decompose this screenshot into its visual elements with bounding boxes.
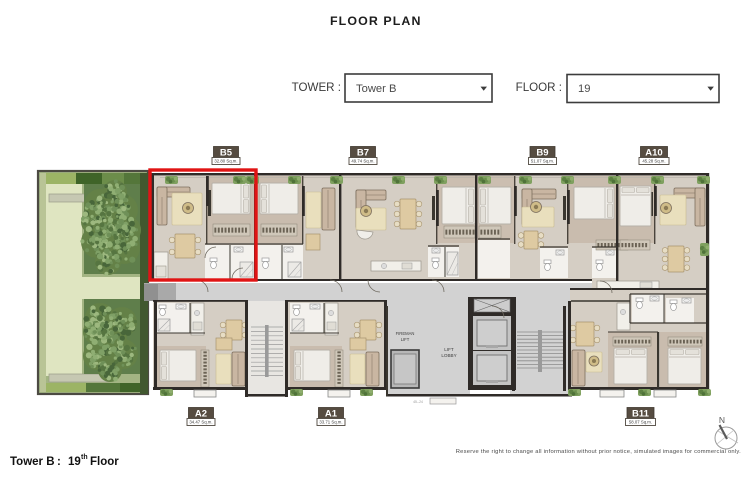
- svg-text:51.07 Sq.m.: 51.07 Sq.m.: [531, 159, 554, 164]
- svg-text:B11: B11: [632, 409, 650, 420]
- svg-text:34.47 Sq.m.: 34.47 Sq.m.: [189, 420, 212, 425]
- svg-text:N: N: [719, 415, 725, 425]
- svg-text:FLOOR :: FLOOR :: [516, 81, 562, 94]
- svg-text:19: 19: [68, 456, 81, 468]
- svg-text:A1: A1: [325, 409, 338, 420]
- svg-text:FIREMAN: FIREMAN: [396, 331, 415, 336]
- svg-text:A2: A2: [195, 409, 207, 420]
- svg-text:B5: B5: [220, 148, 233, 159]
- svg-text:LIFT: LIFT: [401, 337, 410, 342]
- svg-text:Floor: Floor: [90, 456, 119, 468]
- svg-text:LIFT: LIFT: [444, 347, 454, 352]
- svg-text:49.74 Sq.m.: 49.74 Sq.m.: [351, 159, 374, 164]
- svg-text:45--24: 45--24: [413, 400, 423, 404]
- svg-text:19: 19: [578, 83, 590, 95]
- svg-text:B7: B7: [357, 148, 369, 159]
- svg-text:th: th: [81, 454, 88, 461]
- svg-text:Reserve the right to change al: Reserve the right to change all informat…: [456, 449, 741, 455]
- svg-text:LOBBY: LOBBY: [441, 353, 456, 358]
- svg-text:32.80 Sq.m.: 32.80 Sq.m.: [214, 159, 237, 164]
- svg-text::: :: [57, 456, 61, 468]
- svg-text:B9: B9: [536, 148, 548, 159]
- svg-text:33.71 Sq.m.: 33.71 Sq.m.: [319, 420, 342, 425]
- svg-text:TOWER :: TOWER :: [292, 81, 341, 94]
- svg-text:45.28 Sq.m.: 45.28 Sq.m.: [642, 159, 665, 164]
- svg-text:A10: A10: [645, 148, 662, 159]
- svg-text:Tower B: Tower B: [10, 456, 55, 468]
- svg-text:58.07 Sq.m.: 58.07 Sq.m.: [629, 420, 652, 425]
- svg-text:FLOOR PLAN: FLOOR PLAN: [330, 14, 422, 28]
- svg-text:Tower B: Tower B: [356, 83, 396, 95]
